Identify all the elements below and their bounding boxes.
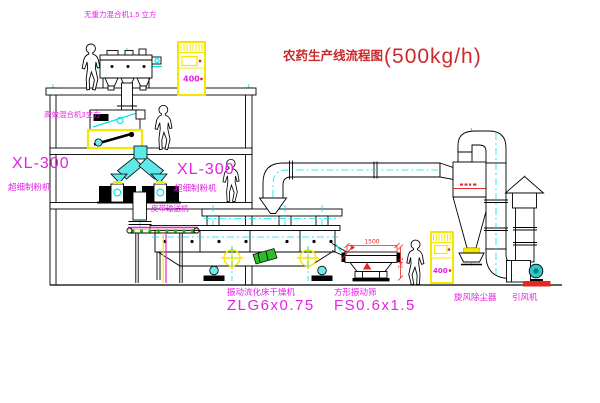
label-mill-right-model: XL-300 [177,162,235,178]
control-cabinet-bottom: 400 [431,232,453,283]
dimension-text: 1500 [364,239,379,246]
cabinet-display-window [435,246,448,254]
indicator-light [199,60,202,63]
label-dryer-name: 振动流化床干燥机 [227,288,295,297]
dimension-screen-width: 1500 [345,239,400,254]
label-dryer-model: ZLG6x0.75 [227,298,315,313]
induced-draft-fan-unit [507,261,551,287]
mill-left [97,181,138,203]
cabinet-panel-text: 400 [183,75,200,84]
person-figure-1 [82,44,100,90]
fan-base [523,281,551,287]
label-belt-conveyor: 皮带输送机 [151,205,189,213]
indicator-light [200,78,203,81]
vibration-motor [318,266,327,275]
dimension-text: 741 [398,257,405,269]
process-flow-drawing: 400 [0,0,600,403]
title-text: 农药生产线流程图 [283,50,383,63]
label-mill-left-model: XL-300 [12,156,70,172]
vibrating-screen [342,245,401,282]
exhaust-duct [260,161,441,214]
diagram-title: 农药生产线流程图(500kg/h) [283,46,482,67]
label-mill-left-name: 超细制粉机 [8,183,51,192]
mill-top-mark [113,181,122,184]
feed-chute [117,83,137,110]
vibration-motor [210,266,219,275]
person-figure-2 [155,105,172,149]
label-gravity-free-mixer: 无重力混合机1.5 立方 [84,11,157,19]
title-capacity: (500kg/h) [384,46,482,67]
label-screen-model: FS0.6x1.5 [334,298,416,313]
cabinet-panel-text: 400 [433,267,448,275]
airlock-valve [464,248,480,253]
mill-top-mark [156,181,165,184]
dimension-screen-height: 741 [398,245,405,281]
indicator-light [449,269,452,272]
indicator-light [448,248,451,251]
label-high-efficiency-mixer: 高效混合机3立方 [44,111,101,119]
cabinet-display-window [182,57,197,66]
rain-cap [506,177,544,194]
label-screen-name: 方形振动筛 [334,288,377,297]
label-induced-draft-fan: 引风机 [512,293,538,302]
label-cyclone: 旋风除尘器 [454,293,497,302]
label-mill-right-name: 超细制粉机 [174,184,217,193]
control-cabinet-top: 400 [178,42,205,95]
person-figure-4 [407,240,424,285]
